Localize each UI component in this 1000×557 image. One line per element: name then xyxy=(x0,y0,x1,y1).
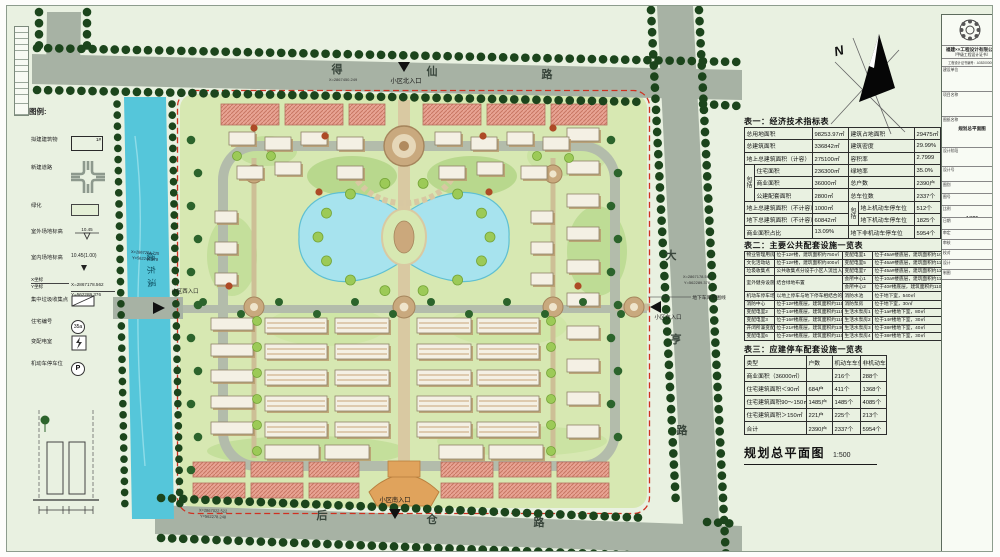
table-cell: 变配电室2 xyxy=(745,308,775,316)
svg-text:N: N xyxy=(832,42,846,59)
table-cell: 总建筑面积 xyxy=(745,140,813,152)
title-block-row-label: 校对 xyxy=(943,251,951,256)
table-cell: 位于40#楼底层，建筑面积约110㎡ xyxy=(873,284,942,292)
green-legend-symbol xyxy=(71,199,115,223)
svg-text:路: 路 xyxy=(534,515,546,529)
company-cert-number: 工程设计证书编号：A352000000 xyxy=(942,59,993,67)
title-block-row-label: 项目名称 xyxy=(943,93,958,98)
table-cell: 绿地率 xyxy=(849,164,915,176)
table-cell: 总车位数 xyxy=(849,189,915,201)
table-cell: 地下非机动车停车位 xyxy=(849,226,915,238)
table-cell: 236300㎡ xyxy=(813,164,849,176)
table-cell: 地上总建筑面积（计容） xyxy=(745,152,813,164)
title-block-row-label: 图纸名称 xyxy=(943,118,958,123)
title-block: 福建××工程设计有限公司（甲级工程设计证书） 工程设计证书编号：A3520000… xyxy=(941,14,993,552)
title-block-row: 审核 xyxy=(942,240,993,250)
table-cell: 位于12#楼，建筑面积约400㎡ xyxy=(775,260,843,268)
legend-item-label: 住宅编号 xyxy=(31,319,69,325)
title-block-row-label: 设计号 xyxy=(943,168,954,173)
economic-indicators-table: 总用地面积98253.97㎡建筑占地面积29475㎡总建筑面积336842㎡建筑… xyxy=(744,127,941,239)
table-cell: 文化活动站 xyxy=(745,260,775,268)
table-cell: 位于16#楼底层，建筑面积约110㎡ xyxy=(775,316,843,324)
table-cell: 2337个 xyxy=(833,421,861,434)
table-cell: 消防泵房 xyxy=(843,300,873,308)
table-cell: 216个 xyxy=(833,369,861,382)
table-cell: 会所中心2 xyxy=(843,284,873,292)
company-name: 福建××工程设计有限公司（甲级工程设计证书） xyxy=(942,46,993,59)
table-cell: 275100㎡ xyxy=(813,152,849,164)
legend-item-trash: 集中垃圾收集点 xyxy=(31,293,115,317)
title-block-row: 日期 xyxy=(942,218,993,230)
legend-panel: 图例: 拟建建筑物1#新建道路绿化室外场地标高10.45室内场地标高10.45(… xyxy=(29,106,115,117)
table-cell: 变配电室1 xyxy=(843,252,873,260)
title-block-row-label: 审定 xyxy=(943,231,951,236)
table-cell: 地下总建筑面积（不计容） xyxy=(745,214,813,226)
frame-strip-cell xyxy=(15,51,28,60)
svg-text:地下车库范围线: 地下车库范围线 xyxy=(692,294,726,301)
table-cell: 1000㎡ xyxy=(813,201,849,213)
table-cell: 会所中心1 xyxy=(843,276,873,284)
table-cell: 1485个 xyxy=(833,395,861,408)
table-cell: 生活水泵房1 xyxy=(843,308,873,316)
table-cell: 5954个 xyxy=(915,226,941,238)
svg-text:路: 路 xyxy=(542,67,554,81)
table-cell: 位于45a#楼底层，建筑面积约100㎡ xyxy=(873,252,942,260)
legend-title: 图例: xyxy=(29,106,115,117)
table-cell: 地上总建筑面积（不计容） xyxy=(745,201,813,213)
legend-item-label: X坐标Y坐标 xyxy=(31,277,69,290)
svg-text:X=2867022.522: X=2867022.522 xyxy=(199,508,228,514)
title-block-row-label: 比例 xyxy=(943,207,951,212)
table-cell: 2390户 xyxy=(915,177,941,189)
drawing-sheet: 得仙路小区北入口X=2867450.249大亨路小区东入口X=2867178.5… xyxy=(6,5,993,552)
table-cell: 512个 xyxy=(915,201,941,213)
svg-text:小区南入口: 小区南入口 xyxy=(380,496,411,504)
table-cell: 36000㎡ xyxy=(813,177,849,189)
table-cell: 商业面积（36000㎡） xyxy=(745,369,807,382)
elev-out-legend-symbol: 10.45 xyxy=(71,225,115,249)
legend-item-power: 变配电室 xyxy=(31,335,115,359)
svg-text:Y=562278.248: Y=562278.248 xyxy=(200,514,227,520)
table-cell: 225个 xyxy=(833,408,861,421)
svg-text:小区西入口: 小区西入口 xyxy=(172,287,199,295)
legend-item-label: 室内场地标高 xyxy=(31,255,69,261)
frame-strip-cell xyxy=(15,72,28,83)
table-cell: 总户数 xyxy=(849,177,915,189)
title-block-row-label: 日期 xyxy=(943,219,951,224)
drawing-frame-strip xyxy=(14,26,29,116)
table-cell: 29475㎡ xyxy=(915,128,941,140)
table-cell: 98253.97㎡ xyxy=(813,128,849,140)
table-cell: 总用地面积 xyxy=(745,128,813,140)
table-cell: 生活水泵房4 xyxy=(843,332,873,340)
table-cell: 商业面积 xyxy=(755,177,813,189)
title-block-row-label: 图别 xyxy=(943,183,951,188)
table-cell: 1368个 xyxy=(861,382,887,395)
title-block-row-label: 审核 xyxy=(943,241,951,246)
title-block-row: 设计阶段 xyxy=(942,148,993,167)
table-cell: 包括 xyxy=(745,164,755,201)
parking-legend-symbol: P xyxy=(71,357,115,381)
table-cell: 变配电室6 xyxy=(745,332,775,340)
table-cell: 垃圾收集点 xyxy=(745,268,775,276)
table-cell: 213个 xyxy=(861,408,887,421)
legend-item-building: 拟建建筑物1# xyxy=(31,133,115,157)
power-legend-symbol xyxy=(71,335,115,359)
table-cell: 2337个 xyxy=(915,189,941,201)
public-facilities-table: 物业管理用房位于12#楼，建筑面积约750㎡变配电室1位于45a#楼底层，建筑面… xyxy=(744,251,942,341)
table-cell: 室外健身设施（宅前屋后供休闲场地） xyxy=(745,276,775,292)
legend-item-label: 机动车停车位 xyxy=(31,361,69,367)
table-cell: 2.7999 xyxy=(915,152,941,164)
table-cell: 1485户 xyxy=(807,395,833,408)
table-cell: 位于12#楼底层，建筑面积约110㎡ xyxy=(775,300,843,308)
table-cell: 位于10a#楼底层，建筑面积约110㎡ xyxy=(873,276,942,284)
svg-text:仓: 仓 xyxy=(426,512,439,526)
parking-facilities-table: 类型户数机动车车位非机动车商业面积（36000㎡）216个288个住宅建筑面积＜… xyxy=(744,355,887,435)
table-cell: 位于25#楼底层，建筑面积约110㎡ xyxy=(775,332,843,340)
table-cell: 684户 xyxy=(807,382,833,395)
table-cell: 商业面积占比 xyxy=(745,226,813,238)
title-block-row: 图号 xyxy=(942,194,993,206)
title-block-row: 图别 xyxy=(942,182,993,194)
table3-title: 表三：应建停车配套设施一览表 xyxy=(744,344,863,355)
table-cell: 变配电室3 xyxy=(745,316,775,324)
table-cell: 容积率 xyxy=(849,152,915,164)
svg-text:小区北入口: 小区北入口 xyxy=(391,77,422,85)
road-legend-symbol xyxy=(71,161,115,185)
title-block-row-label: 图号 xyxy=(943,195,951,200)
drawing-title: 规划总平面图1:500 xyxy=(744,444,877,465)
legend-item-road: 新建道路 xyxy=(31,161,115,185)
table-cell: 包括 xyxy=(849,201,859,226)
table-cell: 4085个 xyxy=(861,395,887,408)
table-cell: 以地上停车与地下停车相结合的形式设计 xyxy=(775,292,843,300)
legend-item-elev-in: 室内场地标高10.45(1.00) xyxy=(31,251,115,275)
trash-legend-symbol xyxy=(71,293,115,317)
table-cell: 公共收集点分设于小区人流出入口使用方便处（3处） xyxy=(775,268,843,276)
table-cell: 机动车停车场 xyxy=(745,292,775,300)
table-cell: 公建配套面积 xyxy=(755,189,813,201)
title-block-row-value: 规划总平面图 xyxy=(944,126,993,132)
table-cell: 开闭所兼变配电室4 xyxy=(745,324,775,332)
company-cert-level: （甲级工程设计证书） xyxy=(942,53,993,58)
table-cell: 建筑密度 xyxy=(849,140,915,152)
table-cell: 地下机动车停车位 xyxy=(859,214,915,226)
svg-text:X=2867178.562: X=2867178.562 xyxy=(683,274,712,279)
table-cell: 288个 xyxy=(861,369,887,382)
legend-item-elev-out: 室外场地标高10.45 xyxy=(31,225,115,249)
title-block-rows: 建设单位项目名称图纸名称规划总平面图设计阶段设计号图别图号比例1:500日期审定… xyxy=(942,67,993,280)
table-cell: 建筑占地面积 xyxy=(849,128,915,140)
legend-item-label: 集中垃圾收集点 xyxy=(31,297,69,303)
company-logo xyxy=(942,15,993,46)
table-cell: 位于21#楼底层，建筑面积约130㎡ xyxy=(775,324,843,332)
table-cell: 5954个 xyxy=(861,421,887,434)
table-cell: 位于14#楼地下室，30㎡ xyxy=(873,316,942,324)
title-block-row: 制图 xyxy=(942,270,993,280)
table-cell: 位于14#楼底层，建筑面积约110㎡ xyxy=(775,308,843,316)
table-cell: 生活水泵房2 xyxy=(843,316,873,324)
legend-item-label: 新建道路 xyxy=(31,165,69,171)
table-cell: 29.99% xyxy=(915,140,941,152)
table-cell: 地上机动车停车位 xyxy=(859,201,915,213)
table-cell: 物业管理用房 xyxy=(745,252,775,260)
legend-item-label: 变配电室 xyxy=(31,339,69,345)
title-block-row: 校对 xyxy=(942,250,993,260)
title-block-row: 审定 xyxy=(942,230,993,240)
svg-text:X=2867450.249: X=2867450.249 xyxy=(329,77,358,82)
title-block-row: 项目名称 xyxy=(942,92,993,117)
svg-text:小区东入口: 小区东入口 xyxy=(655,313,682,321)
building-legend-symbol: 1# xyxy=(71,133,115,157)
title-block-row-label: 制图 xyxy=(943,271,951,276)
title-block-row: 图纸名称规划总平面图 xyxy=(942,117,993,148)
legend-item-label: 室外场地标高 xyxy=(31,229,69,235)
table-cell: 2800㎡ xyxy=(813,189,849,201)
svg-text:亨: 亨 xyxy=(671,332,682,346)
table-cell: 位于45a#楼底层，建筑面积约110㎡ xyxy=(873,268,942,276)
svg-text:大: 大 xyxy=(666,248,677,262)
svg-text:后: 后 xyxy=(317,508,328,522)
table-cell: 住宅建筑面积90～150㎡ xyxy=(745,395,807,408)
table2-title: 表二：主要公共配套设施一览表 xyxy=(744,240,863,251)
table-cell: 位于地下室，540㎡ xyxy=(873,292,942,300)
planning-sheet-page: { "drawing_title": {"text": "规划总平面图", "s… xyxy=(0,0,1000,557)
table-cell: 位于地下室，30㎡ xyxy=(873,300,942,308)
legend-item-parking: 机动车停车位P xyxy=(31,357,115,381)
title-block-row-label: 设计阶段 xyxy=(943,149,958,154)
table-cell: 合计 xyxy=(745,421,807,434)
title-block-row-label: 建设单位 xyxy=(943,68,958,73)
table-cell: 住宅建筑面积＜90㎡ xyxy=(745,382,807,395)
title-block-row-label: 设计 xyxy=(943,261,951,266)
table-cell: 1825个 xyxy=(915,214,941,226)
table-cell: 位于1a#楼地下室，80㎡ xyxy=(873,308,942,316)
table-cell: 13.09% xyxy=(813,226,849,238)
table-cell: 336842㎡ xyxy=(813,140,849,152)
table-cell: 2390户 xyxy=(807,421,833,434)
frame-strip-cell xyxy=(15,104,28,115)
table-cell: 变配电室5 xyxy=(843,260,873,268)
title-block-row: 设计号 xyxy=(942,167,993,182)
table-cell: 住宅建筑面积＞150㎡ xyxy=(745,408,807,421)
legend-item-green: 绿化 xyxy=(31,199,115,223)
table-cell: 消防水池 xyxy=(843,292,873,300)
table-cell: 位于38#楼地下室，30㎡ xyxy=(873,332,942,340)
table-cell: 60842㎡ xyxy=(813,214,849,226)
title-block-row: 建设单位 xyxy=(942,67,993,92)
table1-title: 表一：经济技术指标表 xyxy=(744,116,829,127)
table-cell: 221户 xyxy=(807,408,833,421)
table-cell: 411个 xyxy=(833,382,861,395)
table-cell: 位于46a#楼底层，建筑面积约110㎡ xyxy=(873,260,942,268)
svg-text:得: 得 xyxy=(331,62,343,76)
svg-text:路: 路 xyxy=(677,423,689,437)
table-cell: 生活水泵房3 xyxy=(843,324,873,332)
table-cell: 非机动车 xyxy=(861,356,887,369)
table-cell: 变配电室7 xyxy=(843,268,873,276)
title-block-row: 设计 xyxy=(942,260,993,270)
table-cell: 类型 xyxy=(745,356,807,369)
table-cell: 户数 xyxy=(807,356,833,369)
table-cell xyxy=(807,369,833,382)
svg-text:10.45: 10.45 xyxy=(81,227,93,232)
table-cell: 住宅面积 xyxy=(755,164,813,176)
elev-in-legend-symbol: 10.45(1.00) xyxy=(71,251,115,275)
legend-item-label: 拟建建筑物 xyxy=(31,137,69,143)
svg-text:Y=562289.376: Y=562289.376 xyxy=(684,280,711,285)
table-cell: 机动车车位 xyxy=(833,356,861,369)
table-cell: 位于12#楼，建筑面积约750㎡ xyxy=(775,252,843,260)
table-cell: 结合绿地布置 xyxy=(775,276,843,292)
table-cell: 35.0% xyxy=(915,164,941,176)
title-block-row: 比例1:500 xyxy=(942,206,993,218)
table-cell: 消防中心 xyxy=(745,300,775,308)
svg-text:仙: 仙 xyxy=(427,64,438,78)
table-cell: 位于38#楼地下室，40㎡ xyxy=(873,324,942,332)
drawing-title-text: 规划总平面图 xyxy=(744,446,825,460)
drawing-scale: 1:500 xyxy=(833,452,851,459)
road-section-diagram xyxy=(31,404,101,522)
frame-strip-cell xyxy=(15,95,28,104)
legend-item-label: 绿化 xyxy=(31,203,69,209)
